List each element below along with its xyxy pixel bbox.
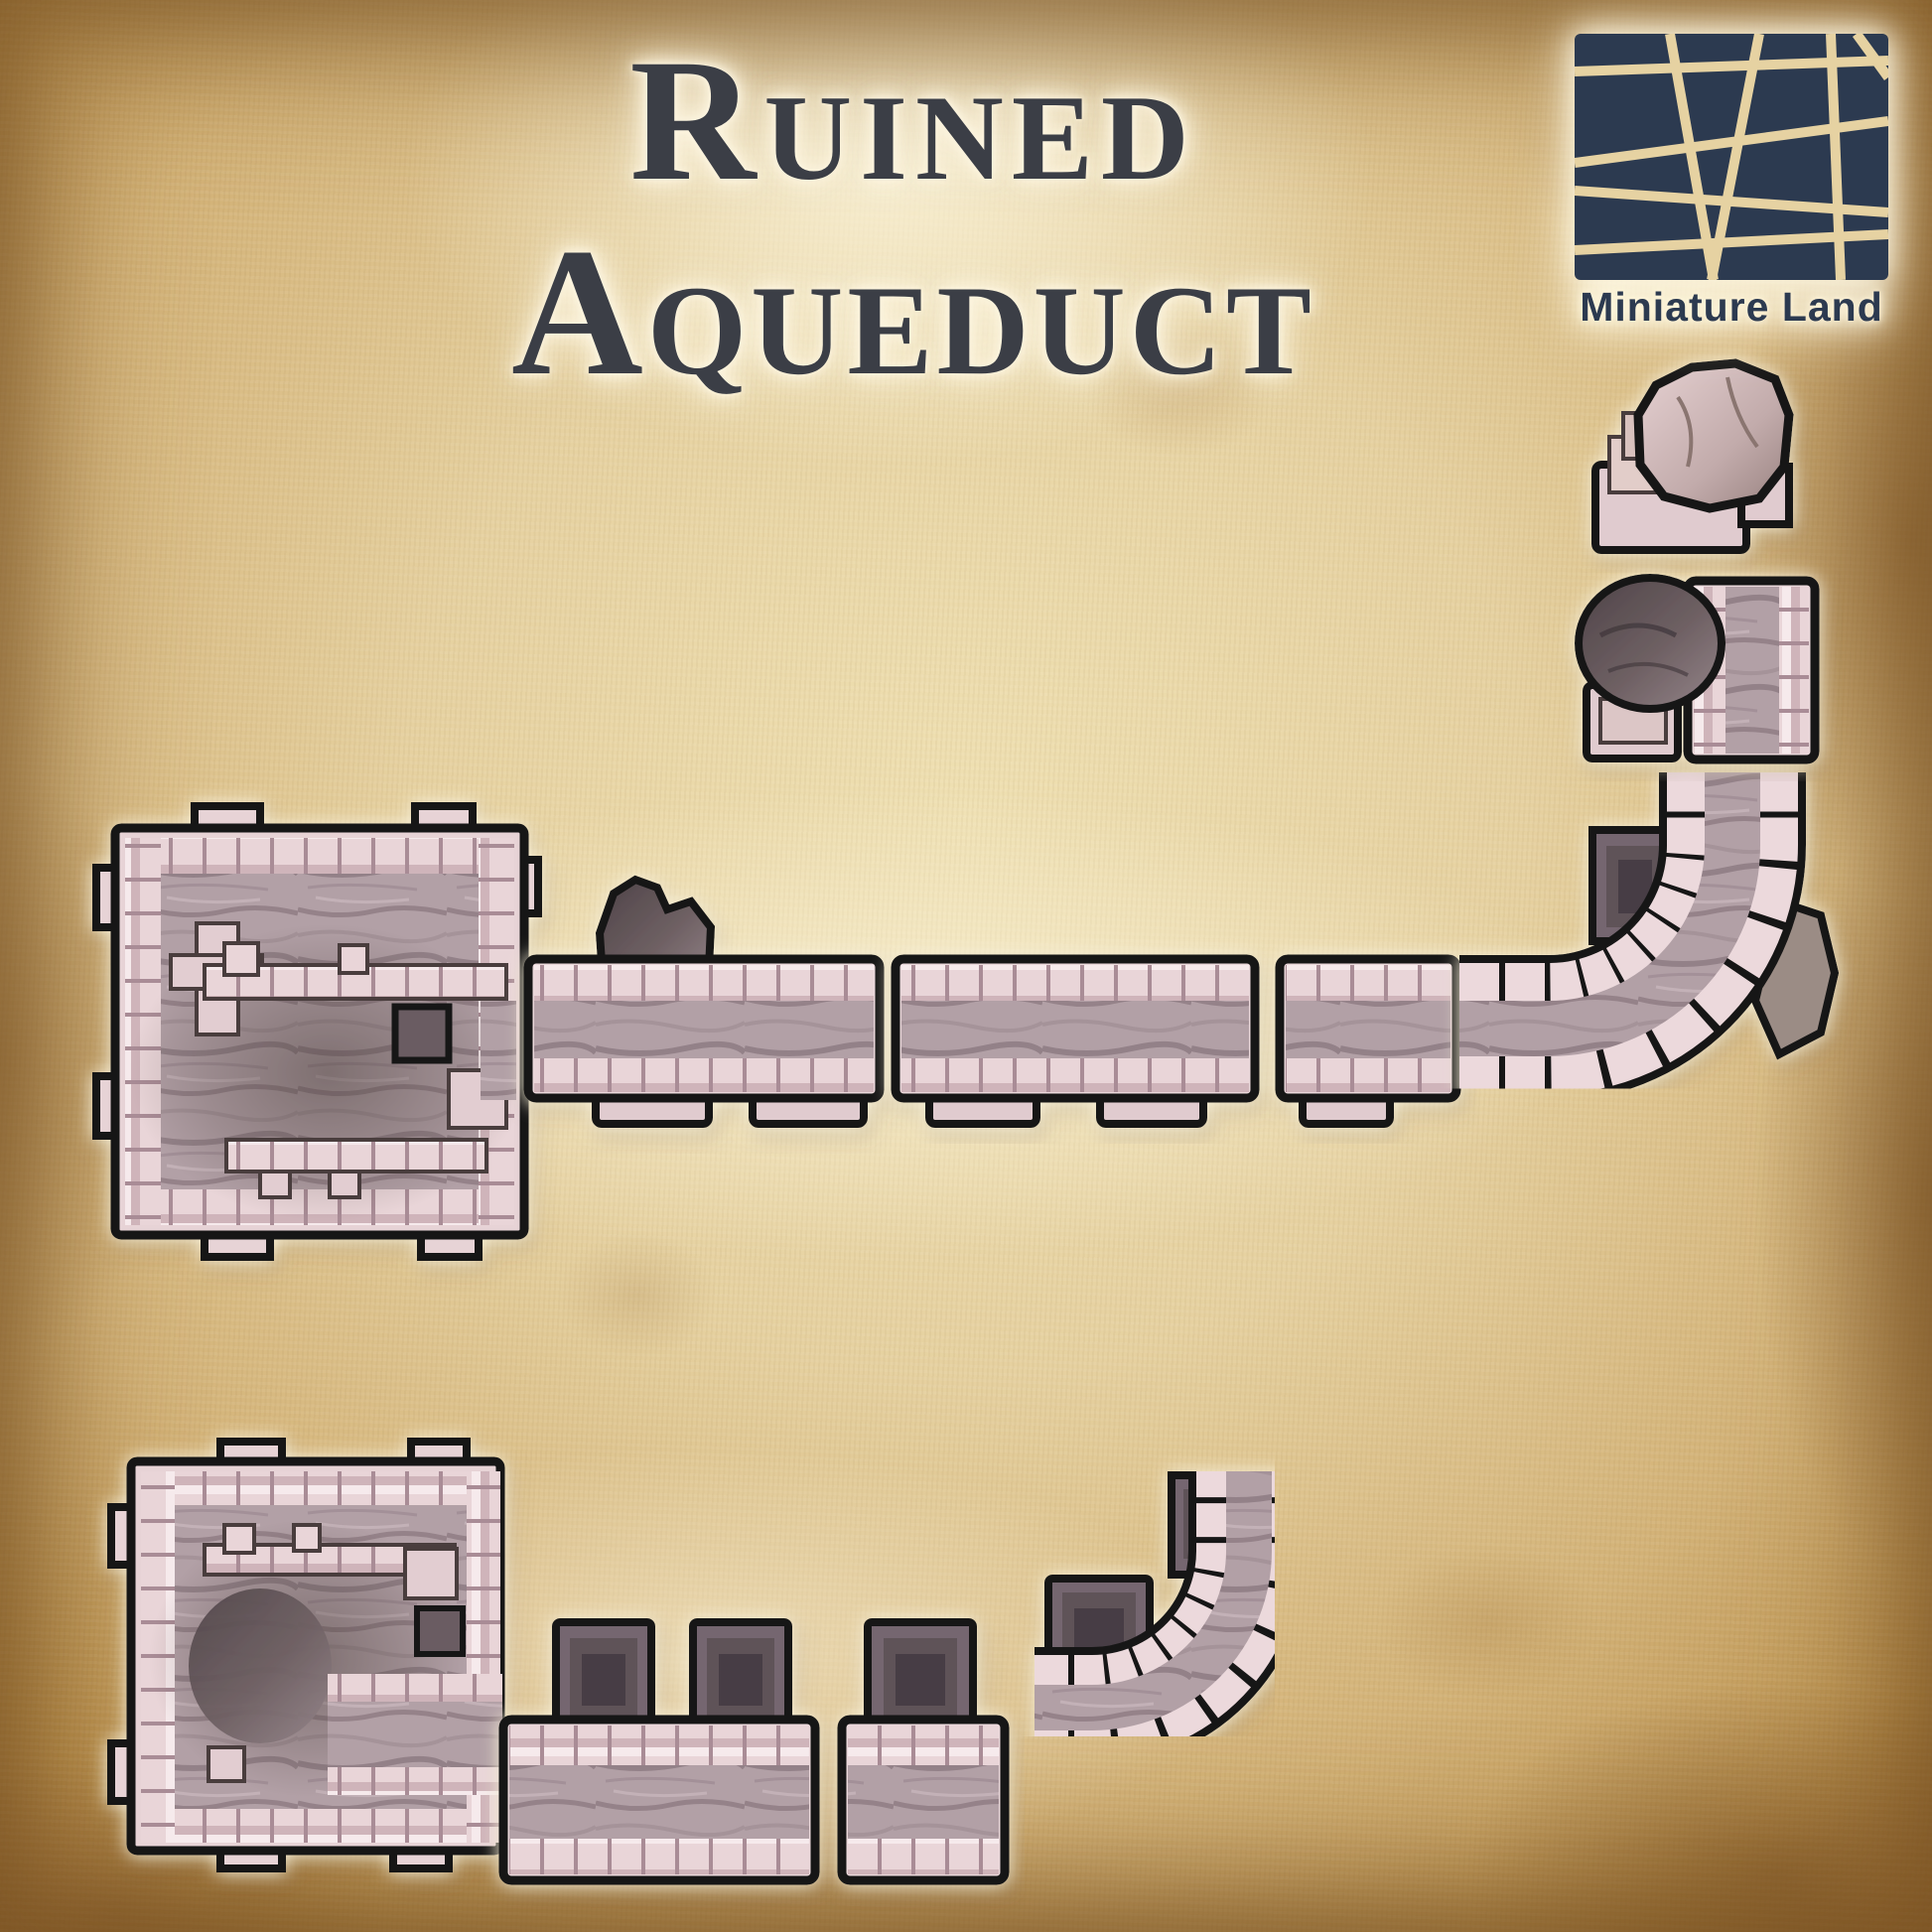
brand-logo-sticks-icon <box>1575 34 1888 280</box>
product-sheet: Ruined Aqueduct Miniature Land <box>0 0 1932 1932</box>
title-line-2: Aqueduct <box>377 220 1449 403</box>
broken-channel-end <box>1579 578 1815 759</box>
tower-basin-2 <box>111 1442 502 1868</box>
curve-segment-bottom <box>1035 1471 1249 1708</box>
brand-logo-text: Miniature Land <box>1575 284 1888 331</box>
corner-segment <box>1459 772 1835 1054</box>
title-line-1: Ruined <box>377 34 1449 208</box>
ruined-segment-1 <box>503 1622 815 1880</box>
page-title: Ruined Aqueduct <box>377 34 1449 403</box>
straight-segment-c <box>1280 959 1456 1124</box>
tower-basin-1 <box>96 806 538 1257</box>
brand-logo-mark <box>1575 34 1888 280</box>
ruined-segment-2 <box>842 1622 1005 1880</box>
brand-logo: Miniature Land <box>1575 34 1888 331</box>
straight-segment-b <box>896 959 1255 1124</box>
broken-pier <box>1595 363 1789 550</box>
straight-segment-a <box>528 880 880 1124</box>
